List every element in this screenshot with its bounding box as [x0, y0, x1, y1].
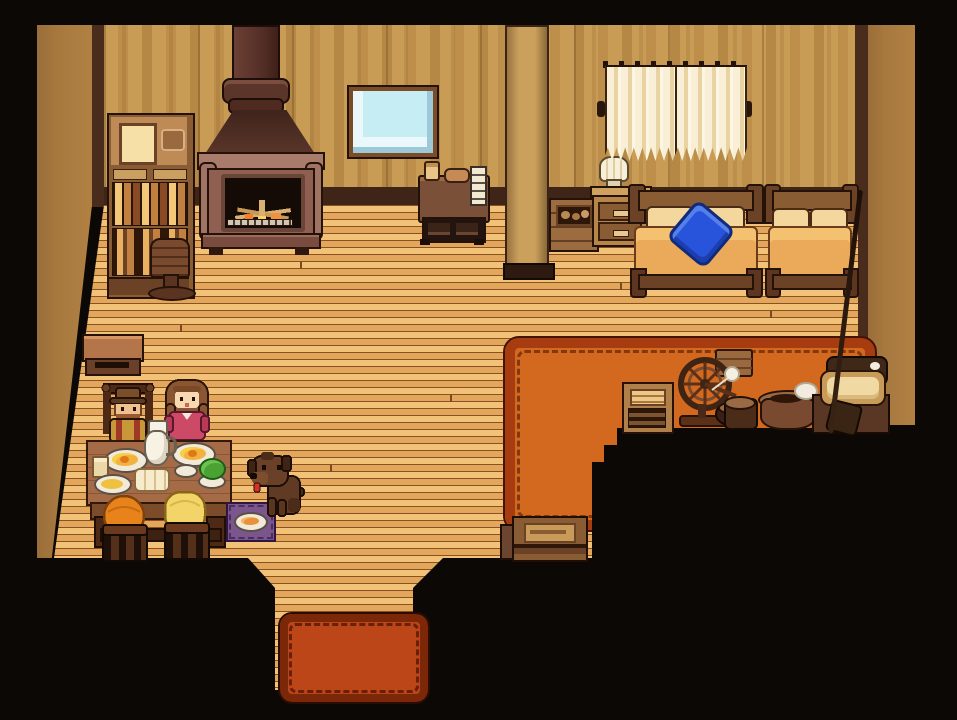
- curtain-right: [675, 65, 747, 161]
- desk-notepad: [470, 166, 487, 206]
- footboard-rail: [772, 274, 852, 290]
- crate-body: [512, 516, 588, 562]
- floor-crate[interactable]: [500, 516, 588, 560]
- doormat[interactable]: [280, 614, 428, 702]
- rocking-chair[interactable]: [146, 236, 194, 298]
- pillar-base: [503, 263, 555, 280]
- appliance-box[interactable]: [622, 382, 674, 434]
- cooking-pot[interactable]: [724, 398, 758, 430]
- support-pillar: [505, 25, 549, 269]
- crate-contents: [581, 210, 589, 218]
- chair-base: [148, 286, 196, 301]
- desk-foot: [474, 239, 484, 245]
- desk-drawer: [456, 223, 478, 235]
- pot-lid: [724, 396, 756, 410]
- dog[interactable]: [244, 450, 308, 520]
- window[interactable]: [597, 61, 752, 163]
- mill-basin[interactable]: [758, 380, 820, 434]
- cabbage: [199, 458, 226, 480]
- egg-yolk: [120, 456, 129, 463]
- wool-dot: [870, 362, 880, 370]
- breakfast-plate: [94, 474, 132, 495]
- desk-cup: [424, 161, 440, 181]
- bookshelf-jars-shelf: [112, 182, 188, 226]
- milk-pitcher: [142, 420, 172, 468]
- mirror[interactable]: [349, 87, 437, 157]
- side-table-slot: [95, 362, 129, 368]
- left-wall-trim: [92, 25, 104, 207]
- chair-back: [150, 238, 190, 278]
- bread: [134, 468, 170, 492]
- plank-seam: [300, 262, 302, 269]
- appliance-screen: [630, 389, 666, 406]
- footboard-rail: [638, 274, 754, 290]
- bookshelf-panel: [161, 129, 185, 151]
- crate-label-line: [530, 530, 566, 534]
- stove-foot: [209, 247, 223, 255]
- kid-chair[interactable]: [102, 528, 148, 562]
- plank-seam: [450, 395, 452, 402]
- left-side-wall: [37, 25, 92, 207]
- plank-seam: [180, 325, 182, 332]
- desk-drawer: [428, 223, 450, 235]
- vegetable-dish: [196, 456, 226, 486]
- plank-seam: [330, 465, 332, 472]
- double-bed[interactable]: [628, 184, 762, 296]
- stove-foot: [295, 247, 309, 255]
- appliance-grill: [628, 408, 666, 428]
- bookshelf-window: [119, 123, 157, 165]
- dark-stairwell: [592, 425, 915, 690]
- bookshelf-label: [153, 169, 187, 180]
- game-scene[interactable]: Pixel-art farm-game cabin: wood stove wi…: [0, 0, 957, 720]
- crate-opening: [556, 205, 592, 226]
- kid-chair[interactable]: [164, 526, 210, 560]
- curtain-left: [605, 65, 677, 161]
- bookshelf-label: [113, 169, 147, 180]
- stove-grate: [227, 219, 293, 226]
- churn-tub: [820, 370, 886, 406]
- desk-loaf: [444, 168, 470, 183]
- small-plate: [174, 464, 198, 478]
- window-handle: [597, 101, 605, 117]
- crate-contents: [572, 213, 580, 220]
- desk-foot: [420, 239, 430, 245]
- plank-seam: [620, 283, 622, 290]
- crate-contents: [561, 211, 570, 219]
- side-table[interactable]: [82, 334, 144, 378]
- plank-seam: [770, 311, 772, 318]
- crate-label: [524, 523, 576, 543]
- food: [101, 479, 123, 489]
- single-bed[interactable]: [764, 184, 856, 296]
